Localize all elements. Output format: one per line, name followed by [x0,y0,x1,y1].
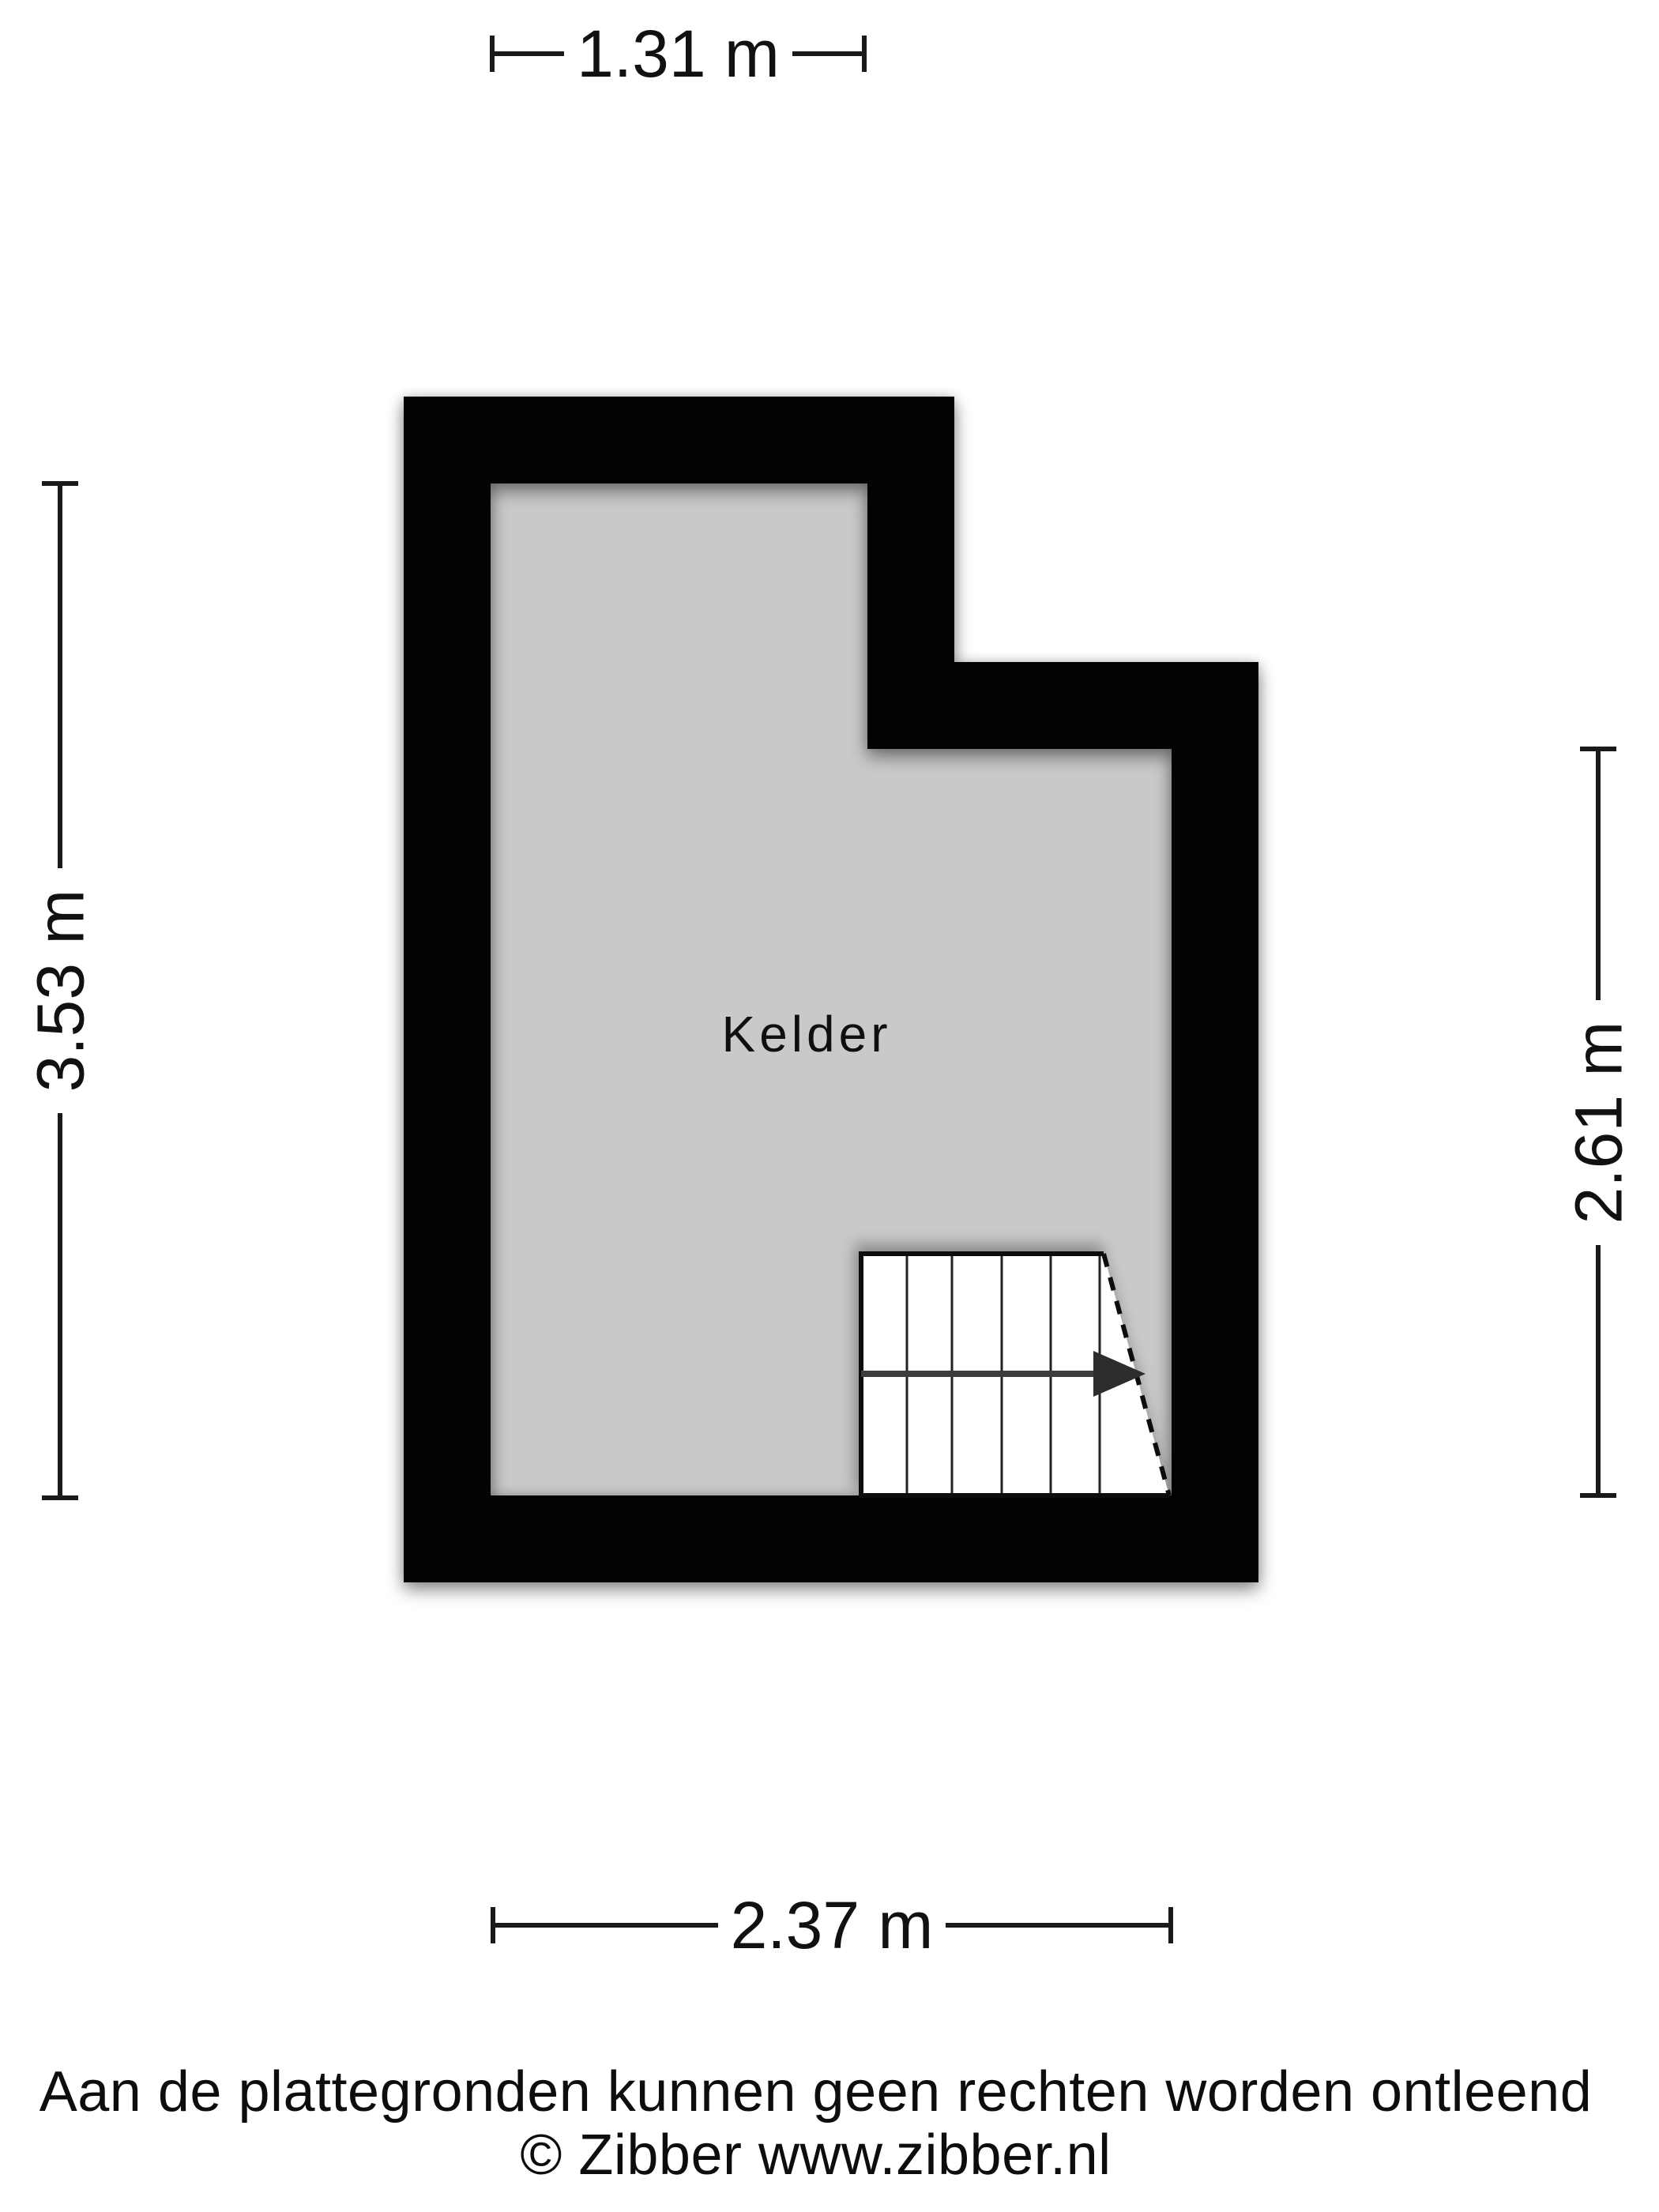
room-label: Kelder [609,1002,1004,1067]
dimension-tick [1168,1907,1173,1943]
dimension-line [1596,751,1601,1000]
dimension-tick [1580,1493,1616,1498]
dimension-line [1596,1245,1601,1494]
dimension-tick [42,1495,78,1500]
dimension-line [495,1923,718,1928]
dimension-tick [862,36,867,72]
dimension-right: 2.61 m [1580,747,1616,1498]
dimension-right-label: 2.61 m [1552,1021,1644,1224]
dimension-top-label: 1.31 m [564,21,792,87]
dimension-left: 3.53 m [42,481,78,1500]
dimension-line [946,1923,1168,1928]
floorplan-canvas: 1.31 m 3.53 m 2.61 m 2.37 m Kelder Aan d… [0,0,1659,2212]
dimension-line [58,1113,62,1495]
footer-disclaimer: Aan de plattegronden kunnen geen rechten… [0,2060,1631,2124]
dimension-bottom-label: 2.37 m [718,1892,946,1958]
dimension-line [58,486,62,868]
dimension-top: 1.31 m [490,6,867,101]
dimension-line [792,51,862,56]
footer: Aan de plattegronden kunnen geen rechten… [0,2060,1631,2187]
dimension-left-label: 3.53 m [14,890,106,1093]
footer-copyright: © Zibber www.zibber.nl [0,2124,1631,2187]
dimension-line [495,51,564,56]
dimension-bottom: 2.37 m [491,1878,1173,1973]
